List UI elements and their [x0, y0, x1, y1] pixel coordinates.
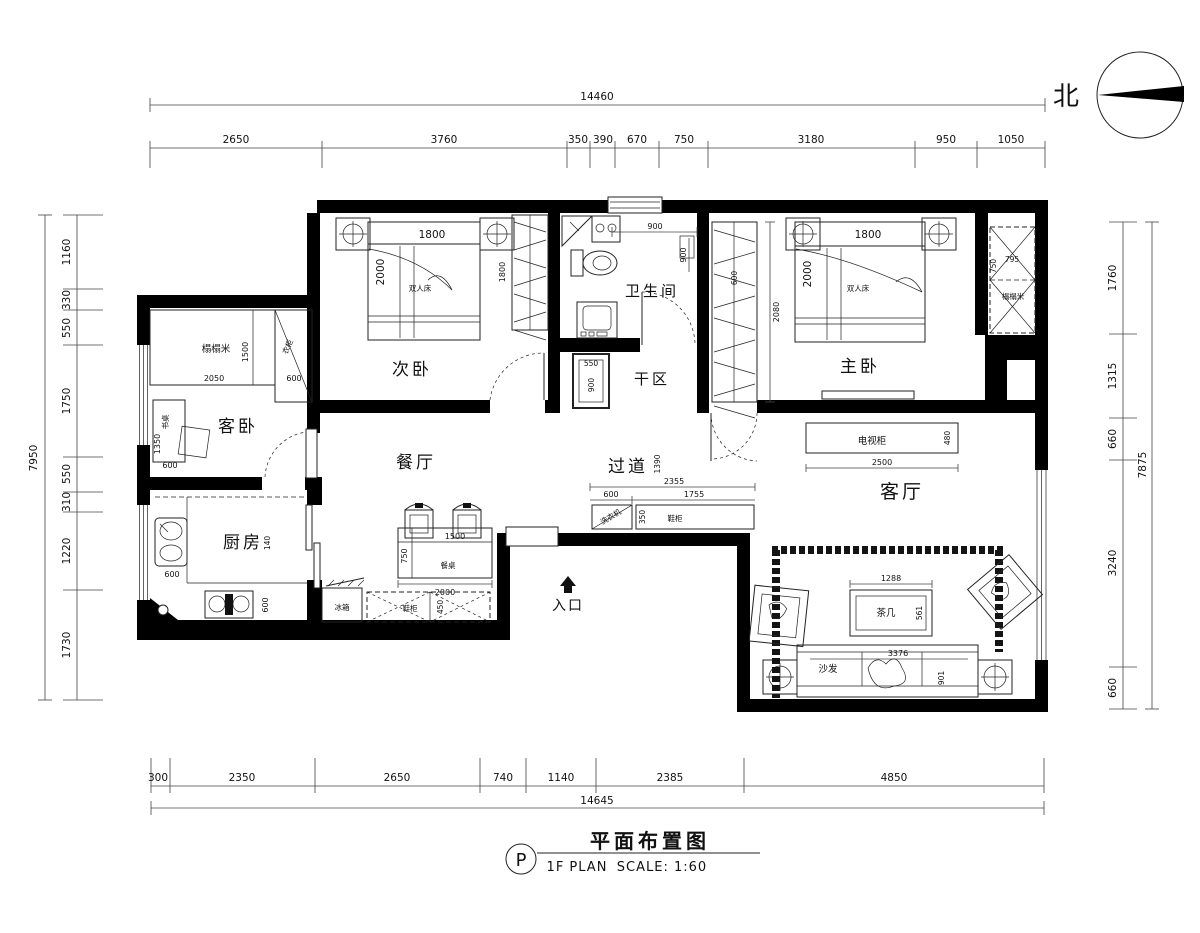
room-dining: 餐厅 1500 750 餐桌 2000 冰箱	[322, 453, 492, 622]
dim: 350	[638, 510, 647, 525]
dim: 1760	[1107, 265, 1119, 292]
dim: 3240	[1107, 550, 1119, 577]
door-master-bedroom	[711, 413, 757, 461]
guest-wardrobe: 衣柜 600	[275, 310, 312, 402]
plan-code: 1F PLAN	[547, 860, 608, 875]
dim: 2500	[872, 458, 892, 467]
dim: 750	[674, 134, 694, 146]
dim: 1288	[881, 574, 901, 583]
dim: 140	[263, 536, 272, 551]
shoe-cabinet-label: 鞋柜	[403, 603, 418, 613]
dim: 750	[989, 259, 998, 274]
dim: 3180	[798, 134, 825, 146]
dim: 350	[568, 134, 588, 146]
carpet	[772, 550, 1003, 698]
room-label-dry-area: 干区	[634, 370, 670, 388]
dim-chain-right: 1760 1315 660 3240 660 7875	[1107, 222, 1159, 709]
windows	[137, 197, 1048, 660]
plan-title: 平面布置图	[590, 829, 710, 853]
dim: 900	[647, 222, 662, 231]
dining-chair	[405, 503, 433, 538]
dim: 1800	[855, 229, 882, 241]
window-guest-left	[137, 345, 150, 445]
walk-in-closet: 2080 600	[712, 222, 781, 418]
room-corridor: 过道 1390 2355 600 1755 洗衣机 350 鞋柜	[590, 454, 755, 529]
floor-plan-drawing: 北 14460 2650 3760 350 390 670 750 3180 9…	[0, 0, 1200, 933]
room-label-bathroom: 卫生间	[625, 282, 679, 300]
dim: 1750	[61, 388, 73, 415]
dim: 1350	[153, 434, 162, 454]
corridor-appliance-nook: 洗衣机	[592, 505, 632, 529]
dim: 2650	[384, 772, 411, 784]
north-arrow: 北	[1053, 52, 1184, 138]
title-bubble: P	[516, 850, 527, 871]
window-bathroom-top	[608, 197, 662, 213]
plan-scale: SCALE: 1:60	[617, 860, 707, 875]
room-living: 客厅 电视柜 480 2500 1288 茶几 561	[749, 423, 1042, 698]
dim: 2650	[223, 134, 250, 146]
dim: 2050	[204, 374, 224, 383]
column-symbol	[336, 218, 370, 250]
tatami-closet-niche: 795 750 榻榻米	[989, 227, 1035, 333]
floor-plan-sheet: 北 14460 2650 3760 350 390 670 750 3180 9…	[0, 0, 1200, 933]
window-kitchen-left	[137, 505, 150, 600]
dim: 1140	[548, 772, 575, 784]
desk-label: 书桌	[160, 414, 170, 429]
dim-chain-top: 14460 2650 3760 350 390 670 750 3180 950…	[150, 91, 1045, 168]
dim: 450	[436, 600, 445, 615]
tv-cabinet: 电视柜 480 2500	[806, 423, 958, 472]
room-label-master-bedroom: 主卧	[840, 357, 880, 377]
shoe-cabinet-dining: 鞋柜 450	[367, 592, 490, 622]
dim: 480	[943, 431, 952, 446]
room-label-kitchen: 厨房	[223, 533, 263, 553]
corridor-shoe-cabinet: 350 鞋柜	[636, 505, 754, 529]
dim-right-total: 7875	[1137, 452, 1149, 479]
dim: 795	[1005, 255, 1020, 264]
room-label-dining: 餐厅	[396, 453, 436, 473]
toilet	[571, 250, 617, 276]
dim: 550	[61, 318, 73, 338]
door-kitchen-sliding	[306, 505, 320, 588]
door-guest-bedroom	[265, 429, 317, 478]
door-entry	[506, 527, 558, 546]
tatami-label: 榻榻米	[202, 343, 231, 355]
dim: 550	[61, 464, 73, 484]
entry: 入口	[552, 576, 584, 614]
dim-bottom-total: 14645	[580, 795, 613, 807]
room-label-secondary-bedroom: 次卧	[392, 360, 432, 380]
bed-label: 双人床	[409, 283, 432, 293]
dim: 1800	[419, 229, 446, 241]
dim: 600	[286, 374, 301, 383]
sofa: 3376 901 沙发	[797, 645, 978, 697]
fridge-label: 冰箱	[335, 602, 350, 612]
dim: 550	[584, 359, 599, 368]
title-block: P 平面布置图 1F PLAN SCALE: 1:60	[506, 829, 760, 875]
dim: 740	[493, 772, 513, 784]
dim: 600	[730, 271, 739, 286]
entry-label: 入口	[552, 598, 584, 614]
washing-machine	[577, 302, 617, 338]
dim: 2385	[657, 772, 684, 784]
dim: 390	[593, 134, 613, 146]
dim: 750	[400, 548, 409, 563]
dim: 310	[61, 492, 73, 512]
entry-arrow-icon	[560, 576, 576, 593]
north-label: 北	[1053, 82, 1079, 112]
window-living-right	[1035, 470, 1048, 660]
dim: 600	[261, 597, 270, 612]
armchair-right	[968, 555, 1043, 630]
table-label: 餐桌	[441, 560, 456, 570]
room-bathroom: 900 900 卫生间	[562, 216, 697, 338]
kitchen-sink	[155, 518, 187, 566]
dim: 1220	[61, 538, 73, 565]
dim: 1500	[241, 342, 250, 362]
door-secondary-bedroom	[490, 353, 544, 400]
dim: 3760	[431, 134, 458, 146]
dim: 950	[936, 134, 956, 146]
dim: 600	[164, 570, 179, 579]
coffee-table-label: 茶几	[876, 607, 896, 619]
sofa-label: 沙发	[818, 663, 838, 675]
column-symbol	[922, 218, 956, 250]
dim: 660	[1107, 678, 1119, 698]
dim: 670	[627, 134, 647, 146]
coffee-table: 1288 茶几 561	[850, 574, 932, 636]
dim-left-total: 7950	[28, 445, 40, 472]
dim: 4850	[881, 772, 908, 784]
dim: 2000	[375, 259, 387, 286]
cabinet-label: 鞋柜	[668, 513, 683, 523]
dim: 2355	[664, 477, 684, 486]
room-secondary-bedroom: 1800 2000 双人床 1800 次卧	[368, 215, 548, 380]
desk: 书桌 1350 600	[153, 400, 210, 470]
room-label-living: 客厅	[880, 481, 924, 503]
stove	[205, 591, 253, 618]
dim: 2000	[802, 261, 814, 288]
dim: 300	[148, 772, 168, 784]
fridge: 冰箱	[322, 578, 364, 622]
dim: 1160	[61, 239, 73, 266]
wardrobe-label: 衣柜	[280, 337, 296, 355]
dim: 3376	[888, 649, 908, 658]
room-label-guest-bedroom: 客卧	[218, 417, 258, 437]
dim: 2350	[229, 772, 256, 784]
dim: 1800	[498, 262, 507, 282]
dim: 2080	[772, 302, 781, 322]
dim: 600	[603, 490, 618, 499]
dim-top-total: 14460	[580, 91, 613, 103]
dim: 330	[61, 290, 73, 310]
room-kitchen: 600 600 厨房 140	[155, 497, 307, 618]
room-guest-bedroom: 榻榻米 2050 1500 衣柜 600 书桌 1350 600 客卧	[150, 310, 312, 470]
dim: 660	[1107, 429, 1119, 449]
column-symbol	[480, 218, 514, 250]
room-master-bedroom: 2080 600 1800 2000 双人床 主卧	[712, 222, 925, 418]
shower: 900 900	[612, 222, 697, 272]
room-label-corridor: 过道	[608, 457, 648, 477]
dim: 1050	[998, 134, 1025, 146]
dim: 600	[162, 461, 177, 470]
dim: 1730	[61, 632, 73, 659]
tatami-closet-label: 榻榻米	[1002, 291, 1025, 301]
dim: 900	[587, 378, 596, 393]
cabinet-label: 洗衣机	[598, 506, 623, 526]
bed-label: 双人床	[847, 283, 870, 293]
room-dry-area: 550 900 干区	[573, 354, 670, 408]
dim-chain-left: 1160 330 550 1750 550 310 1220 1730 7950	[28, 215, 103, 700]
dim: 1755	[684, 490, 704, 499]
column-symbol	[978, 660, 1012, 694]
dim: 901	[937, 671, 946, 686]
column-symbol	[786, 218, 820, 250]
dim: 1390	[653, 454, 662, 473]
tv-cabinet-label: 电视柜	[858, 435, 887, 447]
dim-chain-bottom: 300 2350 2650 740 1140 2385 4850 14645	[148, 758, 1044, 815]
walls	[137, 200, 1048, 712]
dim: 561	[915, 606, 924, 621]
dim: 1315	[1107, 363, 1119, 390]
